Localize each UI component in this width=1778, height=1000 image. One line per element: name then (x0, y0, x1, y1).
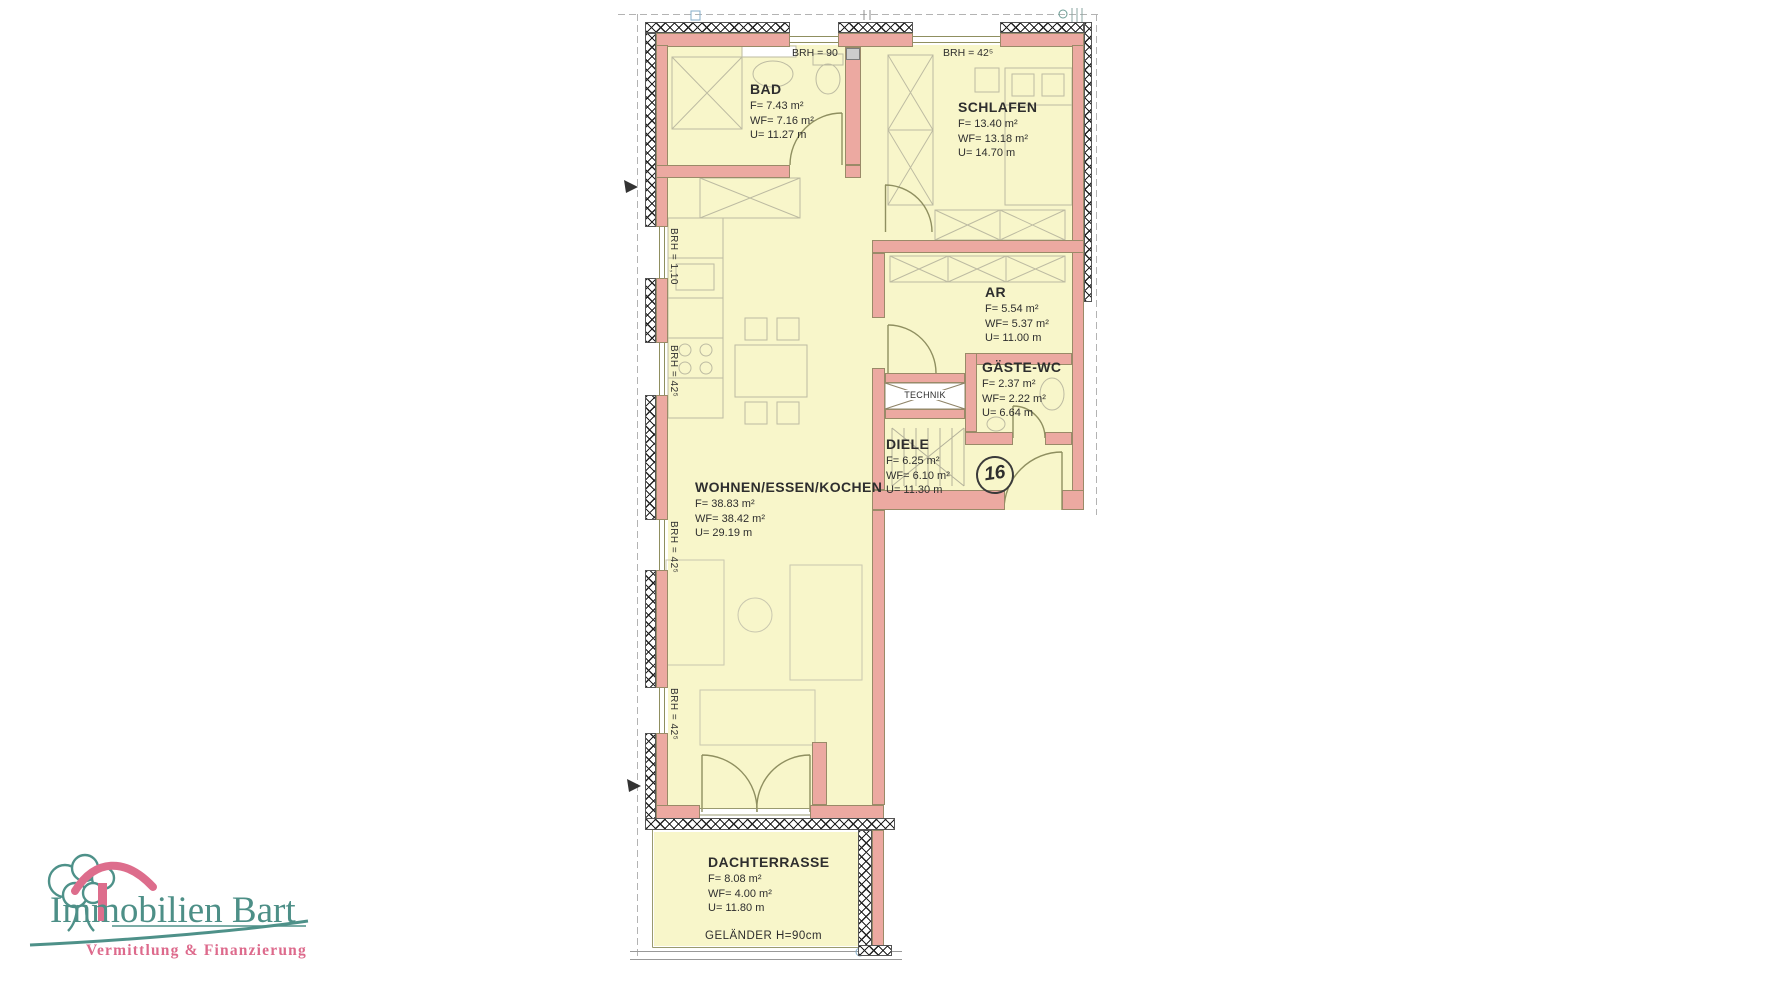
wall-wohnen-east (872, 510, 885, 805)
wall-technik-bottom (885, 409, 965, 419)
hatch-left-4 (645, 570, 656, 688)
nightstand (975, 68, 999, 92)
technik-label: TECHNIK (893, 390, 957, 400)
hatch-top-3 (1000, 22, 1084, 33)
hatch-left-1 (645, 33, 656, 227)
blue-square-mark (691, 11, 700, 20)
sofa-2 (790, 565, 862, 680)
room-label-dachterrasse: DACHTERRASSE F= 8.08 m² WF= 4.00 m² U= 1… (708, 855, 829, 916)
wall-left-4 (656, 570, 668, 688)
room-label-ar: AR F= 5.54 m² WF= 5.37 m² U= 11.00 m (985, 285, 1049, 346)
wall-entrance-post (1062, 490, 1084, 510)
wall-hall-lower (872, 368, 885, 490)
ar-door (888, 325, 936, 373)
hatch-terrace-corner (858, 945, 892, 956)
wall-bad-bottom (656, 165, 790, 178)
hatch-left-2 (645, 278, 656, 343)
left-arrow-mark-2 (627, 779, 641, 792)
wall-left-3 (656, 395, 668, 520)
kitchen-sink (676, 264, 714, 290)
hatch-top-1 (645, 22, 790, 33)
wall-top-mid (838, 33, 913, 47)
wall-wc-bottom-left (965, 432, 1013, 445)
wall-left-2 (656, 278, 668, 343)
brh-label-left-1: BRH = 1,10 (668, 228, 679, 285)
room-label-bad: BAD F= 7.43 m² WF= 7.16 m² U= 11.27 m (750, 82, 814, 143)
gelaender-note: GELÄNDER H=90cm (705, 930, 822, 942)
hatch-terrace-east (858, 830, 872, 948)
wall-hall-upper (872, 253, 885, 318)
hatch-right (1084, 22, 1092, 302)
wall-terrace-east (872, 830, 884, 948)
wall-pier (812, 742, 827, 805)
terrace-door-right (757, 755, 810, 812)
wall-schlafen-bottom (872, 240, 1084, 253)
logo-tagline: Vermittlung & Finanzierung (86, 942, 307, 960)
wall-right (1072, 45, 1084, 510)
brh-label-schlafen-window: BRH = 42⁵ (943, 47, 993, 59)
brh-label-left-3: BRH = 42⁵ (668, 521, 679, 573)
wall-bad-schlafen (845, 47, 861, 165)
wall-top-bad (656, 33, 790, 47)
shaft-box (846, 48, 860, 60)
room-label-schlafen: SCHLAFEN F= 13.40 m² WF= 13.18 m² U= 14.… (958, 100, 1037, 161)
toilet-bowl (816, 64, 840, 94)
wall-technik-top (885, 373, 965, 383)
brh-label-bad-window: BRH = 90 (792, 47, 838, 59)
room-label-gaeste-wc: GÄSTE-WC F= 2.37 m² WF= 2.22 m² U= 6.64 … (982, 360, 1061, 421)
coffee-table (738, 598, 772, 632)
bath-niche (742, 46, 796, 57)
sofa (700, 690, 815, 745)
logo-company-name: Immobilien Bart (50, 889, 296, 932)
brh-label-left-4: BRH = 42⁵ (668, 688, 679, 740)
company-logo: Immobilien Bart Vermittlung & Finanzieru… (20, 853, 330, 978)
hatch-left-5 (645, 733, 656, 823)
brh-label-left-2: BRH = 42⁵ (668, 345, 679, 397)
room-label-diele: DIELE F= 6.25 m² WF= 6.10 m² U= 11.30 m (886, 437, 950, 498)
wall-wc-left (965, 353, 977, 432)
floor-plan-page: BAD F= 7.43 m² WF= 7.16 m² U= 11.27 m SC… (0, 0, 1778, 1000)
left-arrow-mark-1 (624, 180, 638, 193)
hatch-left-3 (645, 395, 656, 520)
hatch-top-2 (838, 22, 913, 33)
terrace-door-left (702, 755, 757, 812)
wall-left-1 (656, 45, 668, 227)
hatch-south (645, 818, 895, 830)
living-furniture (666, 560, 862, 745)
dining-table (735, 345, 807, 397)
sideboard (666, 560, 724, 665)
wall-bad-door-post (845, 165, 861, 178)
room-label-wohnen: WOHNEN/ESSEN/KOCHEN F= 38.83 m² WF= 38.4… (695, 480, 882, 541)
wall-wc-bottom-right (1045, 432, 1072, 445)
